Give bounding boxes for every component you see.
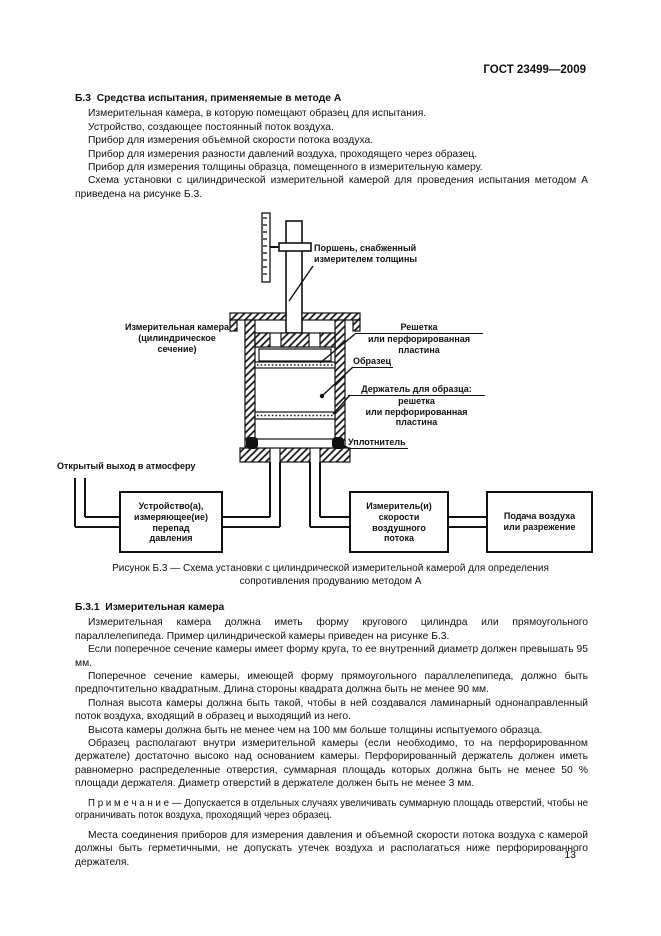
grid-label-line1: Решетка	[355, 322, 483, 334]
flow-meter-label: Измеритель(и)скоростивоздушногопотока	[350, 501, 448, 544]
holder-label: Держатель для образца: решеткаили перфор…	[348, 384, 485, 428]
grid-label: Решетка или перфорированнаяпластина	[355, 322, 483, 355]
note-paragraph: П р и м е ч а н и е — Допускается в отде…	[75, 798, 588, 823]
paragraph: Измерительная камера, в которую помещают…	[75, 107, 588, 120]
holder-label-rest: решеткаили перфорированнаяпластина	[348, 396, 485, 428]
paragraph: Поперечное сечение камеры, имеющей форму…	[75, 670, 588, 697]
chamber-label: Измерительная камера(цилиндрическоесечен…	[112, 322, 242, 354]
piston-head	[255, 333, 335, 361]
sample-label: Образец	[353, 356, 393, 368]
document-page: ГОСТ 23499—2009 Б.3 Средства испытания, …	[0, 0, 661, 936]
paragraph: Если поперечное сечение камеры имеет фор…	[75, 643, 588, 670]
paragraph: Прибор для измерения толщины образца, по…	[75, 161, 588, 174]
section-b3-heading: Б.3 Средства испытания, применяемые в ме…	[75, 92, 588, 105]
paragraph: Схема установки с цилиндрической измерит…	[75, 174, 588, 201]
section-b3: Б.3 Средства испытания, применяемые в ме…	[75, 92, 588, 201]
figure-b3-diagram: Поршень, снабженныйизмерителем толщины И…	[0, 210, 661, 602]
outlet-label: Открытый выход в атмосферу	[57, 461, 217, 472]
air-supply-label: Подача воздухаили разрежение	[487, 511, 592, 533]
paragraph: Полная высота камеры должна быть такой, …	[75, 697, 588, 724]
paragraph: Устройство, создающее постоянный поток в…	[75, 121, 588, 134]
pressure-device-label: Устройство(а),измеряющее(ие)перепаддавле…	[120, 501, 222, 544]
paragraph: Образец располагают внутри измерительной…	[75, 737, 588, 791]
paragraph: Прибор для измерения объемной скорости п…	[75, 134, 588, 147]
page-number: 13	[75, 849, 576, 861]
seal-elements	[246, 437, 344, 449]
paragraph: Высота камеры должна быть не менее чем н…	[75, 724, 588, 737]
doc-header: ГОСТ 23499—2009	[75, 64, 586, 76]
holder-label-line1: Держатель для образца:	[348, 384, 485, 396]
figure-caption: Рисунок Б.3 — Схема установки с цилиндри…	[0, 562, 661, 588]
section-b31-heading: Б.3.1 Измерительная камера	[75, 601, 588, 614]
diagram-canvas	[0, 210, 661, 602]
holder-plate	[255, 412, 335, 419]
paragraph: Измерительная камера должна иметь форму …	[75, 616, 588, 643]
section-b31: Б.3.1 Измерительная камера Измерительная…	[75, 601, 588, 869]
paragraph: Прибор для измерения разности давлений в…	[75, 148, 588, 161]
grid-plate	[255, 362, 335, 368]
seal-label: Уплотнитель	[348, 437, 408, 449]
thickness-ruler	[262, 213, 279, 282]
grid-label-rest: или перфорированнаяпластина	[355, 334, 483, 356]
piston-label: Поршень, снабженныйизмерителем толщины	[314, 243, 434, 265]
